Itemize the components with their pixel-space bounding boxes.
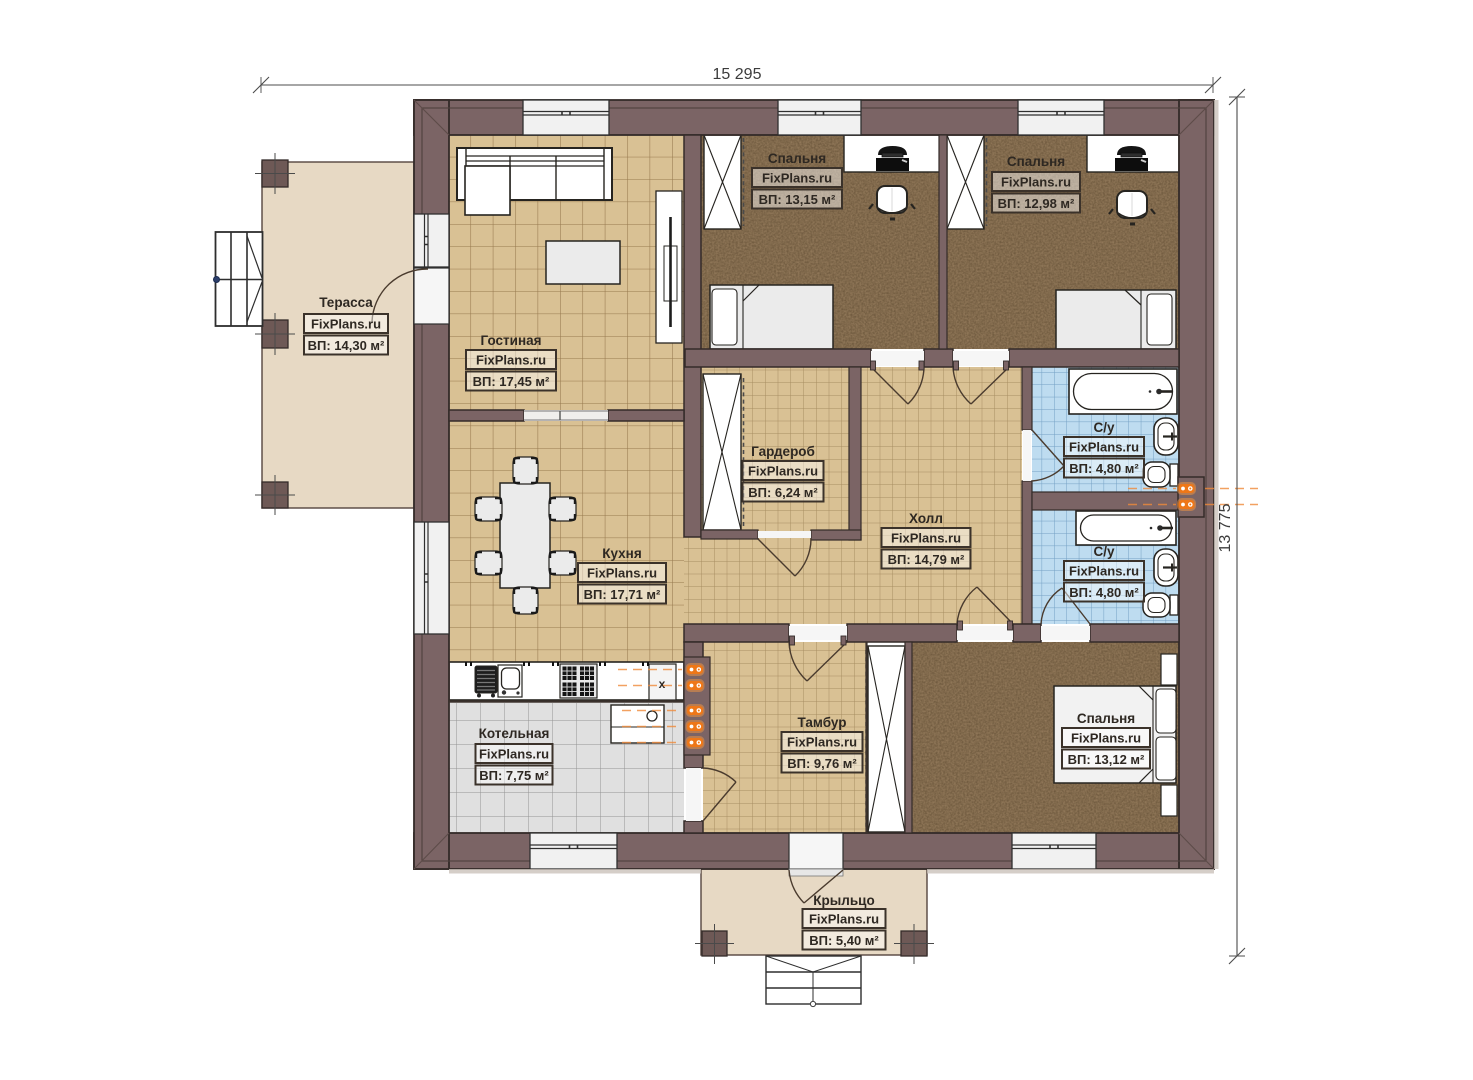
svg-text:ВП: 7,75 м²: ВП: 7,75 м² <box>479 768 549 783</box>
svg-text:FixPlans.ru: FixPlans.ru <box>1069 440 1139 455</box>
svg-text:FixPlans.ru: FixPlans.ru <box>1071 731 1141 746</box>
svg-text:FixPlans.ru: FixPlans.ru <box>809 912 879 927</box>
svg-text:Тамбур: Тамбур <box>798 715 847 730</box>
svg-text:ВП: 13,12 м²: ВП: 13,12 м² <box>1068 752 1145 767</box>
svg-text:FixPlans.ru: FixPlans.ru <box>479 747 549 762</box>
svg-text:FixPlans.ru: FixPlans.ru <box>1069 564 1139 579</box>
svg-text:Спальня: Спальня <box>1007 154 1065 169</box>
svg-text:ВП: 6,24 м²: ВП: 6,24 м² <box>748 485 818 500</box>
svg-text:ВП: 14,79 м²: ВП: 14,79 м² <box>888 552 965 567</box>
svg-text:Терасса: Терасса <box>319 295 373 310</box>
svg-text:ВП: 13,15 м²: ВП: 13,15 м² <box>759 192 836 207</box>
svg-text:Холл: Холл <box>909 511 943 526</box>
svg-text:x: x <box>659 677 666 691</box>
svg-text:FixPlans.ru: FixPlans.ru <box>587 566 657 581</box>
svg-text:ВП: 4,80 м²: ВП: 4,80 м² <box>1069 461 1139 476</box>
svg-text:ВП: 17,71 м²: ВП: 17,71 м² <box>584 587 661 602</box>
svg-text:ВП: 9,76 м²: ВП: 9,76 м² <box>787 756 857 771</box>
svg-text:15 295: 15 295 <box>713 66 762 83</box>
svg-text:FixPlans.ru: FixPlans.ru <box>787 735 857 750</box>
svg-text:Спальня: Спальня <box>1077 711 1135 726</box>
svg-text:Кухня: Кухня <box>602 546 641 561</box>
svg-text:13 775: 13 775 <box>1217 503 1234 552</box>
svg-text:С/у: С/у <box>1093 420 1115 435</box>
svg-text:FixPlans.ru: FixPlans.ru <box>311 317 381 332</box>
svg-text:FixPlans.ru: FixPlans.ru <box>762 171 832 186</box>
svg-text:С/у: С/у <box>1093 544 1115 559</box>
svg-text:FixPlans.ru: FixPlans.ru <box>476 353 546 368</box>
svg-text:Гардероб: Гардероб <box>751 444 815 459</box>
svg-text:Спальня: Спальня <box>768 151 826 166</box>
svg-text:ВП: 4,80 м²: ВП: 4,80 м² <box>1069 585 1139 600</box>
svg-text:ВП: 5,40 м²: ВП: 5,40 м² <box>809 933 879 948</box>
svg-text:Крыльцо: Крыльцо <box>813 893 874 908</box>
svg-text:Гостиная: Гостиная <box>480 333 541 348</box>
svg-text:ВП: 17,45 м²: ВП: 17,45 м² <box>473 374 550 389</box>
svg-text:Котельная: Котельная <box>479 726 550 741</box>
svg-text:FixPlans.ru: FixPlans.ru <box>1001 175 1071 190</box>
svg-text:ВП: 14,30 м²: ВП: 14,30 м² <box>308 338 385 353</box>
svg-text:ВП: 12,98 м²: ВП: 12,98 м² <box>998 196 1075 211</box>
svg-text:FixPlans.ru: FixPlans.ru <box>748 464 818 479</box>
svg-text:FixPlans.ru: FixPlans.ru <box>891 531 961 546</box>
